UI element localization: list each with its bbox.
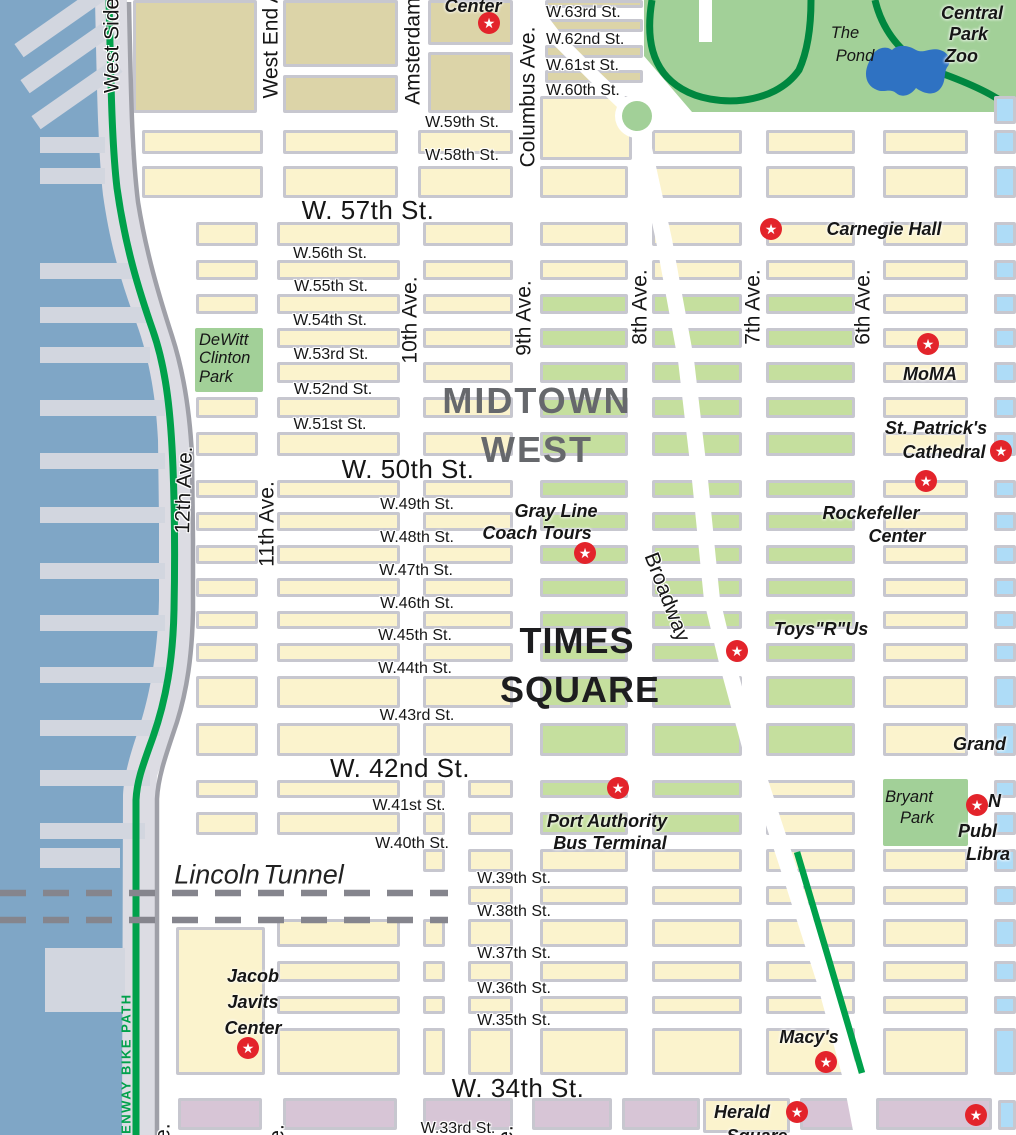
- street-label: W.41st St.: [373, 798, 446, 814]
- street-label: W.62nd St.: [546, 32, 624, 48]
- herald-square-star-marker: ★: [786, 1101, 808, 1123]
- place-label: Macy's: [779, 1028, 838, 1046]
- port-authority-bus-terminal-star-marker: ★: [607, 777, 629, 799]
- street-label: W.38th St.: [477, 904, 551, 920]
- macys-star-marker: ★: [815, 1051, 837, 1073]
- avenue-label: 8th Ave.: [630, 269, 651, 345]
- bike-path-label: GREENWAY BIKE PATH: [120, 993, 133, 1135]
- avenue-label: West Side Hwy.: [102, 0, 123, 93]
- place-label: Herald: [714, 1103, 770, 1121]
- place-label: DeWitt: [199, 332, 248, 349]
- street-label: W.52nd St.: [294, 382, 372, 398]
- avenue-label: Columbus Ave.: [518, 27, 539, 168]
- area-label: WEST: [481, 432, 593, 468]
- place-label: Center: [868, 527, 925, 545]
- street-label: W.40th St.: [375, 836, 449, 852]
- avenue-label: 12th Ave.: [153, 1123, 174, 1135]
- place-label: MoMA: [903, 365, 957, 383]
- street-label: W.61st St.: [546, 58, 619, 74]
- street-label: W.60th St.: [546, 83, 620, 99]
- place-label: Park: [199, 369, 233, 386]
- street-label: W.55th St.: [294, 279, 368, 295]
- street-label: W. 42nd St.: [330, 755, 470, 781]
- street-label: W.45th St.: [378, 628, 452, 644]
- place-label: Coach Tours: [482, 524, 591, 542]
- place-label: Carnegie Hall: [826, 220, 941, 238]
- rockefeller-center-star-marker: ★: [915, 470, 937, 492]
- place-label: The: [831, 25, 859, 42]
- empire-state-building-star-marker: ★: [965, 1104, 987, 1126]
- avenue-label: 12th Ave.: [172, 446, 196, 534]
- street-label: W.33rd St.: [421, 1121, 496, 1135]
- street-label: W.35th St.: [477, 1013, 551, 1029]
- toys-r-us-star-marker: ★: [726, 640, 748, 662]
- gray-line-coach-tours-star-marker: ★: [574, 542, 596, 564]
- place-label: Square: [726, 1127, 787, 1135]
- street-label: W. 50th St.: [342, 456, 475, 482]
- street-label: W.44th St.: [378, 661, 452, 677]
- street-label: W.46th St.: [380, 596, 454, 612]
- avenue-label: 7th Ave.: [743, 269, 764, 345]
- place-label: Rockefeller: [822, 504, 919, 522]
- street-label: W.54th St.: [293, 313, 367, 329]
- street-label: W.56th St.: [293, 246, 367, 262]
- place-label: Lincoln Tunnel: [174, 862, 344, 889]
- place-label: Pond: [836, 48, 875, 65]
- avenue-label: 11th Ave.: [257, 481, 278, 567]
- place-label: Publ: [958, 822, 997, 840]
- street-label: W. 34th St.: [452, 1075, 585, 1101]
- moma-star-marker: ★: [917, 333, 939, 355]
- avenue-label: Broadway: [640, 550, 693, 645]
- avenue-label: 9th Ave.: [514, 280, 535, 356]
- place-label: Clinton: [199, 350, 250, 367]
- place-label: Bryant: [885, 789, 933, 806]
- street-label: W.59th St.: [425, 115, 499, 131]
- jacob-javits-center-star-marker: ★: [237, 1037, 259, 1059]
- area-label: MIDTOWN: [442, 383, 631, 419]
- ny-public-library-star-marker: ★: [966, 794, 988, 816]
- labels-layer: W.63rd St.W.62nd St.W.61st St.W.60th St.…: [0, 0, 1016, 1135]
- avenue-label: West End Ave.: [261, 0, 282, 98]
- place-label: Grand: [953, 735, 1006, 753]
- place-label: N: [988, 792, 1001, 810]
- st-patricks-cathedral-star-marker: ★: [990, 440, 1012, 462]
- place-label: Cathedral: [902, 443, 985, 461]
- place-label: Zoo: [945, 47, 978, 65]
- place-label: Gray Line: [514, 502, 597, 520]
- place-label: Toys"R"Us: [774, 620, 868, 638]
- place-label: Park: [900, 810, 934, 827]
- street-label: W.37th St.: [477, 946, 551, 962]
- street-label: W.48th St.: [380, 530, 454, 546]
- street-label: W.53rd St.: [294, 347, 369, 363]
- place-label: Jacob: [227, 967, 279, 985]
- avenue-label: 9th Ave.: [496, 1125, 517, 1135]
- street-label: W. 57th St.: [302, 197, 435, 223]
- place-label: St. Patrick's: [885, 419, 987, 437]
- street-label: W.63rd St.: [546, 5, 621, 21]
- avenue-label: 11th Ave.: [267, 1124, 288, 1135]
- carnegie-hall-star-marker: ★: [760, 218, 782, 240]
- place-label: Central: [941, 4, 1003, 22]
- avenue-label: 10th Ave.: [400, 276, 421, 363]
- lincoln-center-star-marker: ★: [478, 12, 500, 34]
- street-label: W.58th St.: [425, 148, 499, 164]
- street-label: W.39th St.: [477, 871, 551, 887]
- street-label: W.51st St.: [294, 417, 367, 433]
- street-label: W.49th St.: [380, 497, 454, 513]
- place-label: Center: [224, 1019, 281, 1037]
- area-label: TIMES: [519, 623, 634, 659]
- place-label: Javits: [227, 993, 278, 1011]
- avenue-label: Amsterdam Ave.: [403, 0, 424, 105]
- place-label: Bus Terminal: [553, 834, 666, 852]
- place-label: Port Authority: [547, 812, 667, 830]
- place-label: Park: [949, 25, 988, 43]
- area-label: SQUARE: [500, 672, 660, 708]
- avenue-label: 6th Ave.: [853, 269, 874, 345]
- place-label: Libra: [966, 845, 1010, 863]
- street-label: W.47th St.: [379, 563, 453, 579]
- street-label: W.43rd St.: [380, 708, 455, 724]
- street-label: W.36th St.: [477, 981, 551, 997]
- city-map: W.63rd St.W.62nd St.W.61st St.W.60th St.…: [0, 0, 1016, 1135]
